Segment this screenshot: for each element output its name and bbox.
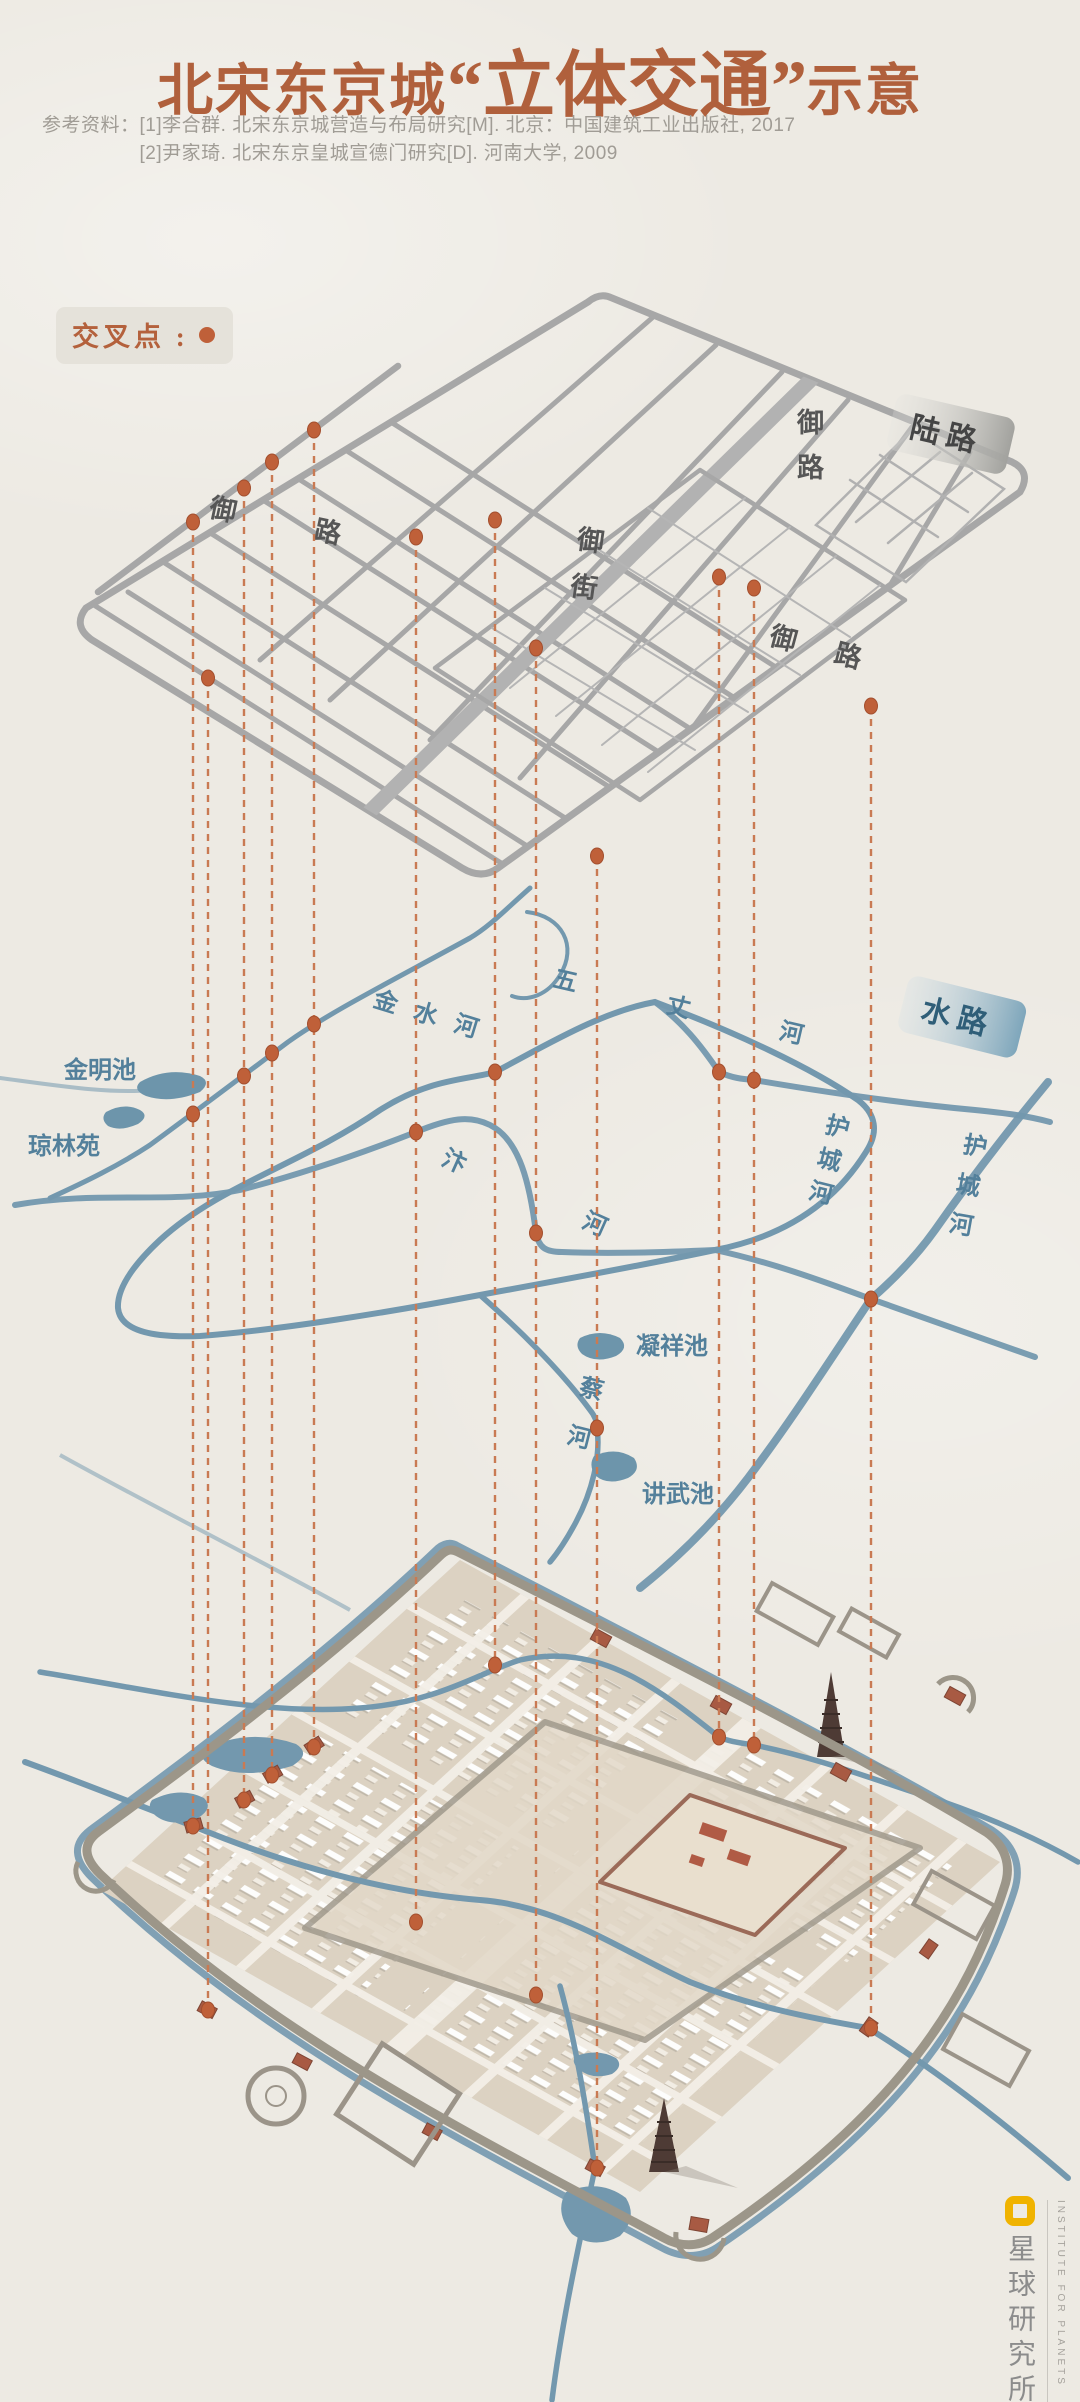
reference-item-1: [1]李合群. 北宋东京城营造与布局研究[M]. 北京：中国建筑工业出版社, 2… <box>140 112 796 140</box>
crossing-dot <box>266 454 279 470</box>
crossing-dot <box>238 480 251 496</box>
crossing-dot <box>187 1106 200 1122</box>
crossing-dot <box>713 1729 726 1745</box>
logo-divider <box>1047 2200 1048 2402</box>
logo-name-cn: 星球研究所 <box>1000 2234 1040 2402</box>
legend-crossing-point: 交叉点 : <box>56 307 233 364</box>
crossing-dot <box>530 640 543 656</box>
water-ningxiang-lake <box>577 1333 624 1360</box>
crossing-dot <box>489 1657 502 1673</box>
logo-name-en: INSTITUTE FOR PLANETS <box>1055 2200 1066 2387</box>
crossing-dot <box>410 529 423 545</box>
crossing-dot <box>530 1987 543 2003</box>
crossing-dot <box>591 1420 604 1436</box>
crossing-dot <box>748 1737 761 1753</box>
water-layer: 金水河 五丈河 金明池 琼林苑 汴河 护城河 护城河 凝祥池 蔡河 讲武池 水路 <box>0 888 1050 1588</box>
crossing-dot <box>713 569 726 585</box>
crossing-dot <box>591 2160 604 2176</box>
crossing-dot <box>238 1792 251 1808</box>
crossing-dot <box>489 512 502 528</box>
water-qionglin-lake <box>103 1106 144 1128</box>
crossing-dot <box>266 1045 279 1061</box>
water-jinming-lake <box>137 1072 206 1099</box>
crossing-dot <box>266 1767 279 1783</box>
land-badge: 陆路 <box>885 392 1017 476</box>
legend-label: 交叉点 : <box>72 315 189 354</box>
crossing-dot <box>748 1072 761 1088</box>
title-suffix: 示意 <box>807 61 923 123</box>
label-jiangwu-chi: 讲武池 <box>642 1481 714 1508</box>
label-ningxiang-chi: 凝祥池 <box>636 1332 708 1360</box>
crossing-dot <box>410 1914 423 1930</box>
crossing-dot <box>591 848 604 864</box>
water-badge: 水路 <box>896 974 1028 1060</box>
reference-item-2: [2]尹家琦. 北宋东京皇城宣德门研究[D]. 河南大学, 2009 <box>140 140 796 168</box>
label-yulu-left: 御路 <box>206 491 423 566</box>
crossing-dot <box>865 1291 878 1307</box>
crossing-dot <box>748 580 761 596</box>
crossing-dot <box>202 670 215 686</box>
city-layer <box>25 1455 1078 2400</box>
crossing-dot <box>187 1818 200 1834</box>
crossing-dot <box>308 1739 321 1755</box>
city-nw-stream <box>60 1455 350 1610</box>
land-layer: 御路 御路 御街 御路 陆路 <box>80 296 1060 956</box>
crossing-dot <box>865 698 878 714</box>
crossing-dot <box>308 422 321 438</box>
crossing-dot-icon <box>199 327 215 343</box>
infographic-page: 北宋东京城“立体交通”示意 参考资料： [1]李合群. 北宋东京城营造与布局研究… <box>0 0 1080 2402</box>
crossing-dot <box>410 1124 423 1140</box>
label-bian-he: 汴河 <box>438 1144 731 1295</box>
label-jinming-chi: 金明池 <box>63 1056 136 1084</box>
references: 参考资料： [1]李合群. 北宋东京城营造与布局研究[M]. 北京：中国建筑工业… <box>42 112 795 168</box>
water-bian-he <box>15 1119 1035 1357</box>
crossing-dot <box>308 1016 321 1032</box>
crossing-dot <box>865 2020 878 2036</box>
crossing-dot <box>187 514 200 530</box>
label-hucheng-he-outer: 护城河 <box>947 1131 989 1241</box>
water-jiangwu-lake <box>591 1451 636 1481</box>
crossing-dot <box>713 1064 726 1080</box>
crossing-dot <box>202 2002 215 2018</box>
label-jinshui-he: 金水河 <box>369 985 499 1049</box>
crossing-dot <box>489 1064 502 1080</box>
crossing-dot <box>530 1225 543 1241</box>
logo-ring-icon <box>1005 2196 1035 2226</box>
publisher-logo: 星球研究所 INSTITUTE FOR PLANETS <box>1000 2196 1066 2402</box>
references-label: 参考资料： <box>42 112 140 168</box>
label-qionglin-yuan: 琼林苑 <box>28 1132 100 1160</box>
label-hucheng-he-inner: 护城河 <box>806 1112 852 1210</box>
crossing-dot <box>238 1068 251 1084</box>
